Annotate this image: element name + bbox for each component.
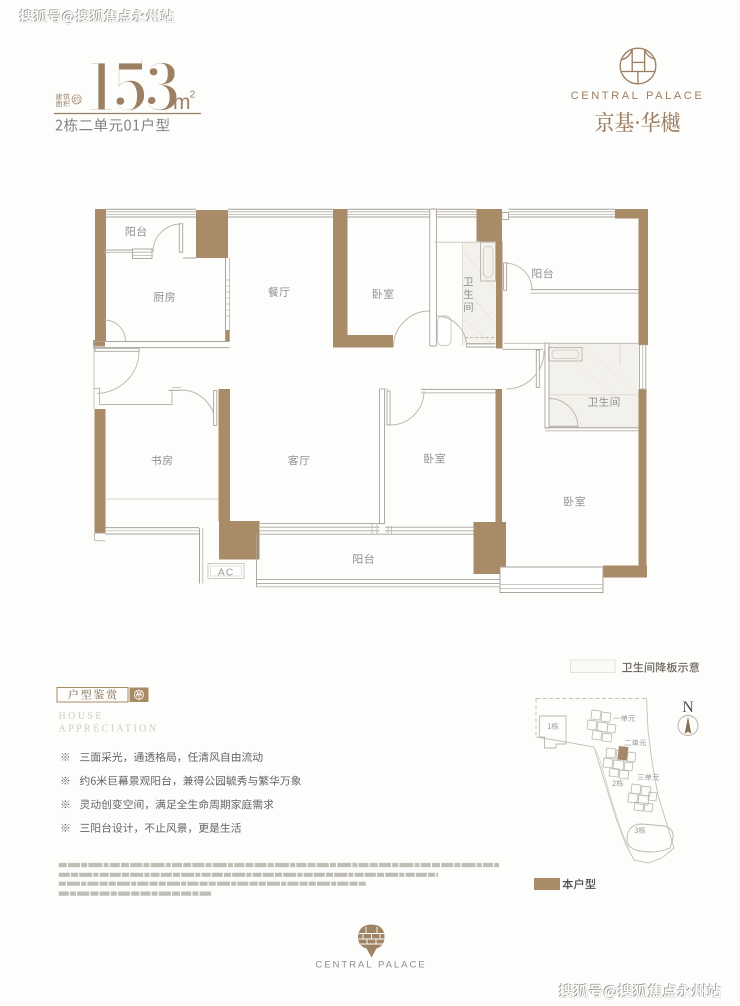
svg-text:m: m: [173, 91, 191, 114]
svg-text:HOUSE: HOUSE: [59, 711, 104, 722]
svg-text:CENTRAL PALACE: CENTRAL PALACE: [315, 960, 426, 971]
svg-text:CENTRAL PALACE: CENTRAL PALACE: [571, 90, 705, 102]
svg-text:AC: AC: [218, 567, 235, 579]
svg-text:2: 2: [190, 89, 196, 101]
svg-text:N: N: [682, 699, 694, 716]
svg-text:APPRECIATION: APPRECIATION: [59, 724, 159, 735]
